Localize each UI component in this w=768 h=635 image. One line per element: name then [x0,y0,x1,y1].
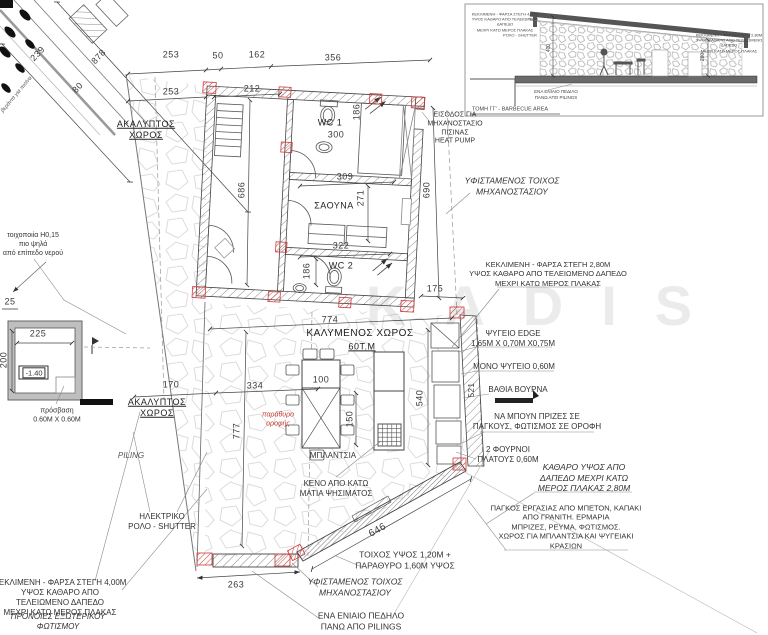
dim-774: 774 [322,314,339,325]
covered-area-size: 60Τ.Μ [348,341,375,352]
section-roof-28-label: ΚΕΚΛΙΜΕΝΗ - ΦΑΡΣΑ ΣΤΕΓΗ 2,80Μ ΥΨΟΣ ΚΑΘΑΡ… [695,33,763,54]
dim-175: 175 [427,283,444,294]
section-dim-400: 400 [546,44,553,52]
door-arc [207,225,234,252]
sink-wc1-icon [316,141,333,153]
dim-25: 25 [4,296,15,307]
shower-enclosure [358,103,406,175]
note-existing-wall-bottom: ΥΦΙΣΤΑΜΕΝΟΣ ΤΟΙΧΟΣ ΜΗΧΑΝΟΣΤΑΣΙΟΥ [308,576,403,597]
dim-271: 271 [355,190,366,207]
section-footing-label: ΕΝΑ ΕΝΙΑΙΟ ΠΕΔΙΛΟ ΠΑΝΩ ΑΠΟ PILINGS [534,89,578,101]
section-caption: ΤΟΜΗ ΓΓ' - BARBECUE AREA [472,106,548,113]
dim-170: 170 [163,379,180,390]
note-ovens: 2 ΦΟΥΡΝΟΙ ΠΛΑΤΟΥΣ 0,60Μ [477,445,538,465]
note-existing-wall-right: ΥΦΙΣΤΑΜΕΝΟΣ ΤΟΙΧΟΣ ΜΗΧΑΝΟΣΤΑΣΙΟΥ [465,175,560,196]
section-shutter-label: ΡΟΛΟ - SHUTTER [503,32,537,37]
dim-150: 150 [344,411,355,428]
pit-structure [2,262,150,405]
equipment-bench-icon [214,104,243,157]
note-worktop: ΠΑΓΚΟΣ ΕΡΓΑΣΙΑΣ ΑΠΟ ΜΠΕΤΟΝ, ΚΑΠΑΚΙ ΑΠΟ Γ… [491,504,642,551]
note-masonry: τοιχοποιία Η0,15 πιο ψηλά από επίπεδο νε… [3,232,63,258]
note-footing: ΕΝΑ ΕΝΙΑΙΟ ΠΕΔΗΛΟ ΠΑΝΩ ΑΠΟ PILINGS [318,610,404,631]
room-covered: ΚΑΛΥΜΕΝΟΣ ΧΩΡΟΣ [306,328,413,341]
dim-50: 50 [212,50,223,61]
door-arc [287,200,312,225]
note-exterior-lighting: ΠΡΟΝΟΙΕΣ ΕΞΩΤΕΡΙΚΟΥ ΦΩΤΙΣΜΟΥ [11,612,105,632]
dim-253-top: 253 [163,49,180,60]
level-value: -1.40 [22,367,45,378]
vent-icon [92,337,99,354]
note-blantzia: ΜΠΛΑΝΤΣΙΑ [310,451,356,461]
dim-200: 200 [0,352,10,369]
room-wc1: WC 1 [318,117,343,128]
sink-wc2-icon [293,283,306,293]
dim-540: 540 [414,390,425,407]
kitchen-island [374,352,404,450]
note-piling: PILING [118,451,144,461]
dim-690: 690 [421,182,432,199]
note-sockets: ΝΑ ΜΠΟΥΝ ΠΡΙΖΕΣ ΣΕ ΠΑΓΚΟΥΣ, ΦΩΤΙΣΜΟΣ ΣΕ … [473,412,601,432]
dim-186-wc2: 186 [301,263,312,280]
note-clear-height: ΚΑΘΑΡΟ ΥΨΟΣ ΑΠΟ ΔΑΠΕΔΟ ΜΕΧΡΙ ΚΑΤΩ ΜΕΡΟΣ … [538,462,630,494]
section-floor-slab [515,76,757,83]
dim-334: 334 [247,380,264,391]
access-hatch [56,377,75,393]
note-roof-window: παράθυρο οροφής [262,411,294,429]
note-access: πρόσβαση 0.60Μ X 0.60Μ [33,407,80,425]
dim-263: 263 [228,579,245,590]
dim-300: 300 [328,129,345,140]
section-dim-280: 280 [700,53,707,61]
note-fridge-edge: ΨΥΓΕΙΟ EDGE 1,65Μ X 0,70Μ X0,75Μ [471,329,555,349]
note-electric-shutter: ΗΛΕΚΤΡΙΚΟ ΡΟΛΟ - SHUTTER [128,512,196,532]
note-deep-sink: ΒΑΘΙΑ ΒΟΥΡΝΑ [488,385,547,395]
grill-icon [378,424,401,446]
floor-plan-drawing: KADIS [0,0,768,635]
dim-100: 100 [313,374,330,385]
wall-niche [401,198,411,224]
room-wc2: WC 2 [329,260,354,271]
note-void-below: ΚΕΝΟ ΑΠΟ ΚΑΤΩ ΜΑΤΙΑ ΨΗΣΙΜΑΤΟΣ [300,479,373,499]
room-open-space-top: ΑΚΑΛΥΠΤΟΣ ΧΩΡΟΣ [117,119,175,142]
dim-686: 686 [236,182,247,199]
section-roof-4-label: ΚΕΚΛΙΜΕΝΗ - ΦΑΡΣΑ ΣΤΕΓΗ 4,00Μ ΥΨΟΣ ΚΑΘΑΡ… [465,12,545,33]
dim-322: 322 [333,240,350,251]
dim-521: 521 [467,383,477,398]
room-sauna: ΣΑΟΥΝΑ [314,200,354,211]
note-roof-280: ΚΕΚΛΙΜΕΝΗ - ΦΑΡΣΑ ΣΤΕΓΗ 2,80Μ ΥΨΟΣ ΚΑΘΑΡ… [469,260,627,288]
dim-309: 309 [337,171,354,182]
dim-253-row2: 253 [163,86,180,97]
threshold-marker [80,399,113,405]
dim-777: 777 [231,423,242,440]
dim-162: 162 [249,49,266,60]
note-heat-pump: ΕΙΣΟΔΟΣ ΓΙΑ ΜΗΧΑΝΟΣΤΑΣΙΟ ΠΙΣΙΝΑΣ HEAT PU… [427,112,482,147]
dining-table [302,360,340,448]
door-arc [206,256,233,283]
dim-356: 356 [325,52,342,63]
room-open-space-left: ΑΚΑΛΥΠΤΟΣ ΧΩΡΟΣ [128,397,186,420]
dim-225: 225 [30,328,47,339]
dim-186-wc1: 186 [351,104,362,121]
note-wall-window: ΤΟΙΧΟΣ ΥΨΟΣ 1,20Μ + ΠΑΡΑΘΥΡΟ 1,60Μ ΥΨΟΣ [355,549,454,570]
dim-212: 212 [244,83,261,94]
note-mono-fridge: ΜΟΝΟ ΨΥΓΕΙΟ 0,60Μ [473,362,555,372]
